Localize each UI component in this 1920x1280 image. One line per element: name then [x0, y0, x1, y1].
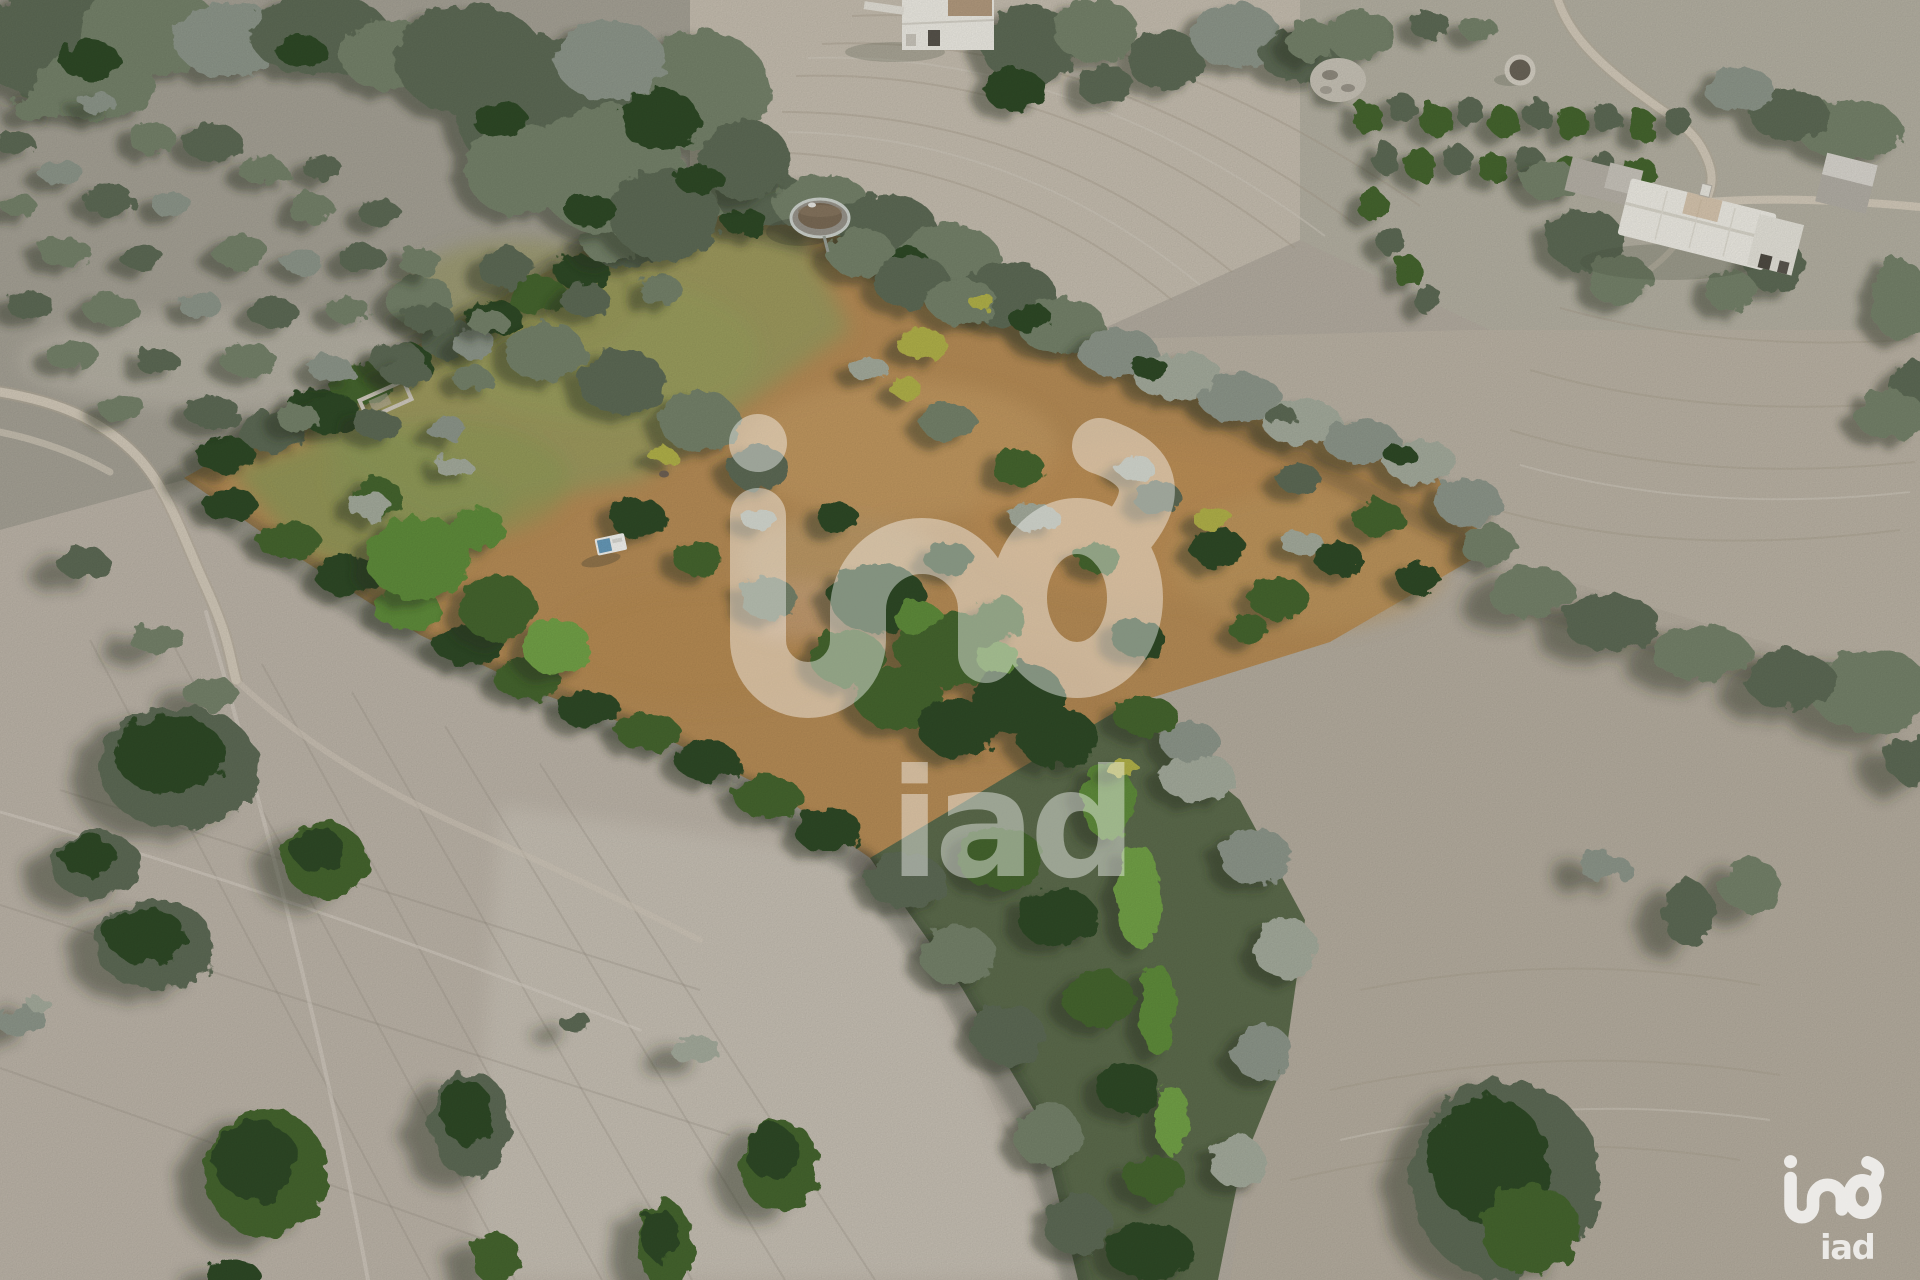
iad-watermark-text: iad — [889, 738, 1131, 912]
iad-logo-text: iad — [1820, 1228, 1874, 1267]
aerial-photo: iad iad — [0, 0, 1920, 1280]
aerial-photo-canvas: iad iad — [0, 0, 1920, 1280]
